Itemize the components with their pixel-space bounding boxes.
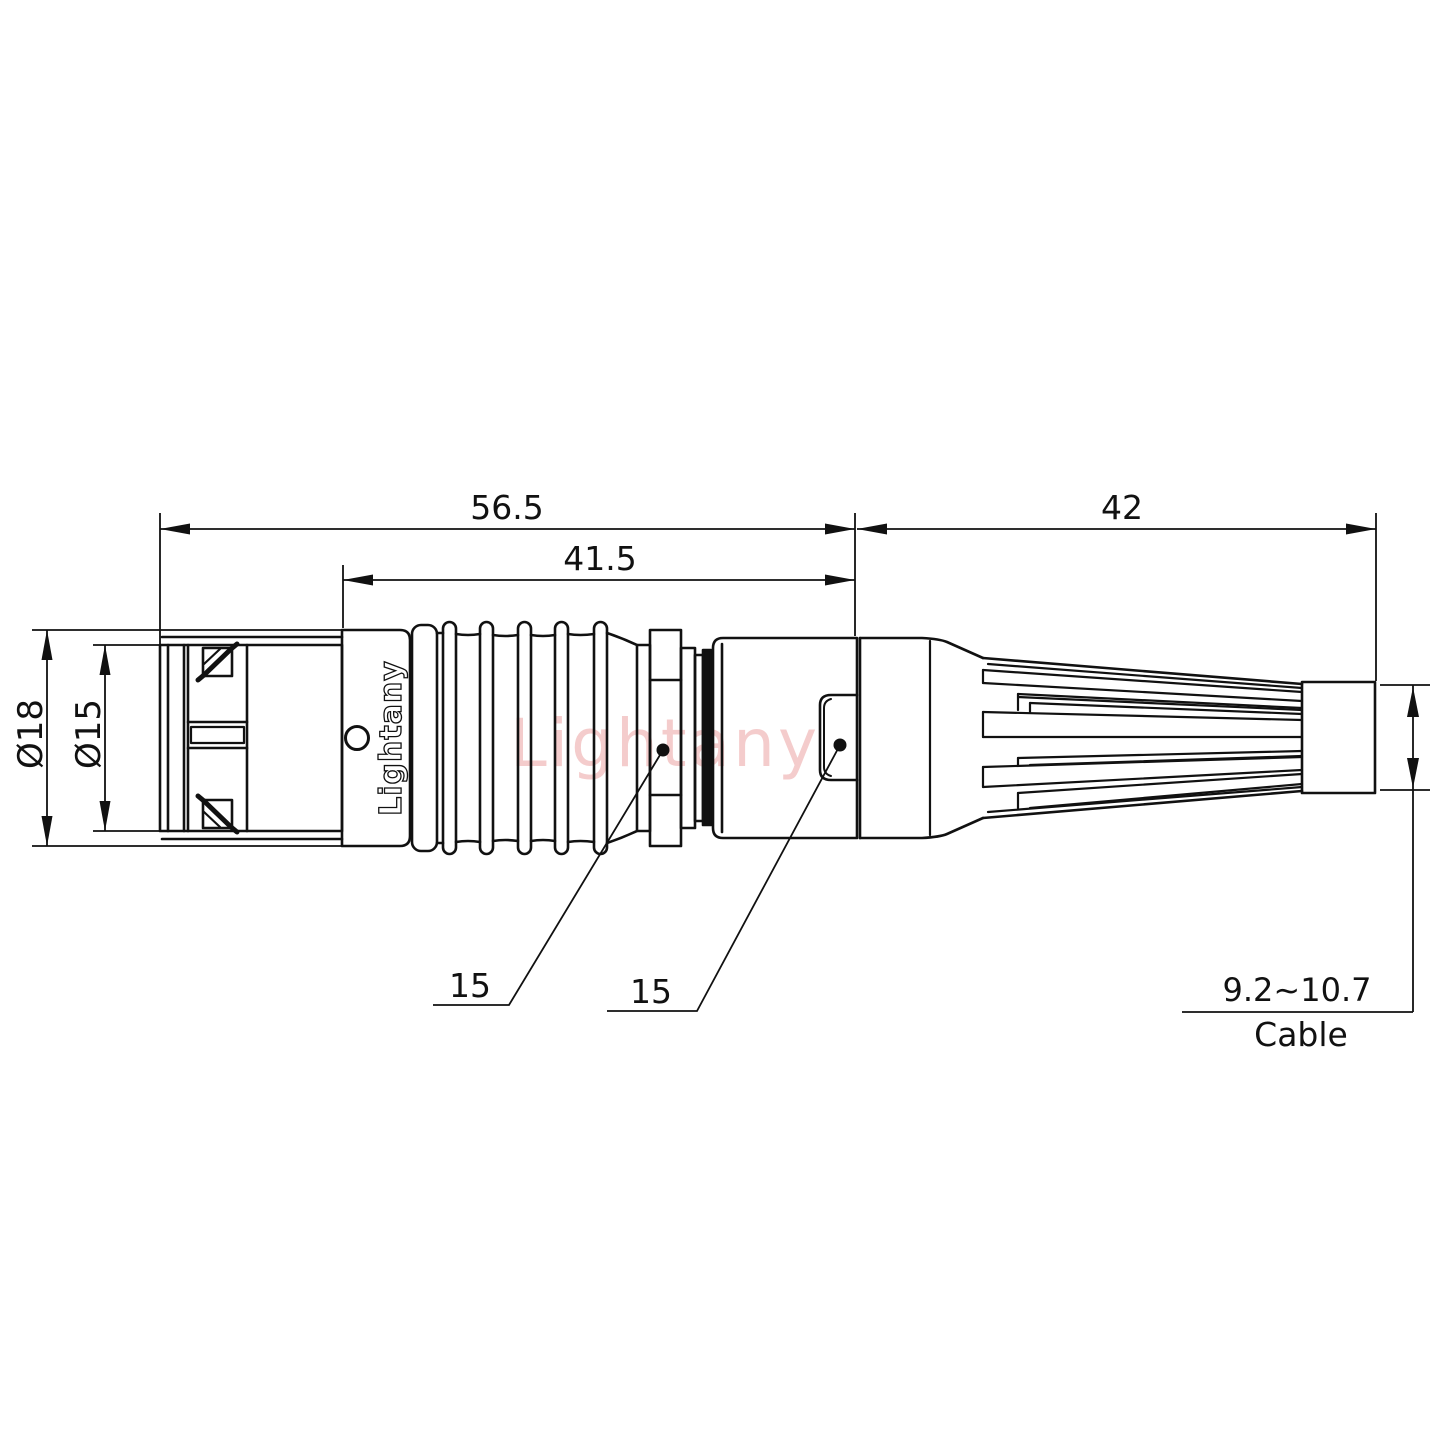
- leader-dot-rear: [834, 739, 847, 752]
- leader-dot-front: [657, 744, 670, 757]
- dim-boot-length: 42: [1101, 488, 1143, 527]
- dim-wrench-flat-rear: 15: [630, 972, 672, 1011]
- brand-watermark: Lightany: [510, 705, 820, 782]
- dim-overall-length: 56.5: [470, 488, 543, 527]
- strain-relief-boot: [860, 638, 1375, 838]
- latch-window: [820, 695, 857, 780]
- body-index-dot: [346, 727, 369, 750]
- dim-housing-length: 41.5: [563, 539, 636, 578]
- latch-block: [188, 644, 247, 832]
- dim-coupling-diameter: Ø15: [69, 699, 109, 769]
- dim-outer-diameter: Ø18: [11, 699, 51, 769]
- brand-text-on-body: Lightany: [374, 660, 409, 816]
- dim-cable-range: 9.2~10.7: [1223, 971, 1372, 1009]
- cable-caption: Cable: [1254, 1015, 1348, 1054]
- drawing-svg: Lightany: [0, 0, 1440, 1440]
- boot-tip: [1302, 682, 1375, 793]
- dim-wrench-flat-front: 15: [449, 966, 491, 1005]
- seal-ring: [703, 650, 711, 825]
- connector-technical-drawing: Lightany: [0, 0, 1440, 1440]
